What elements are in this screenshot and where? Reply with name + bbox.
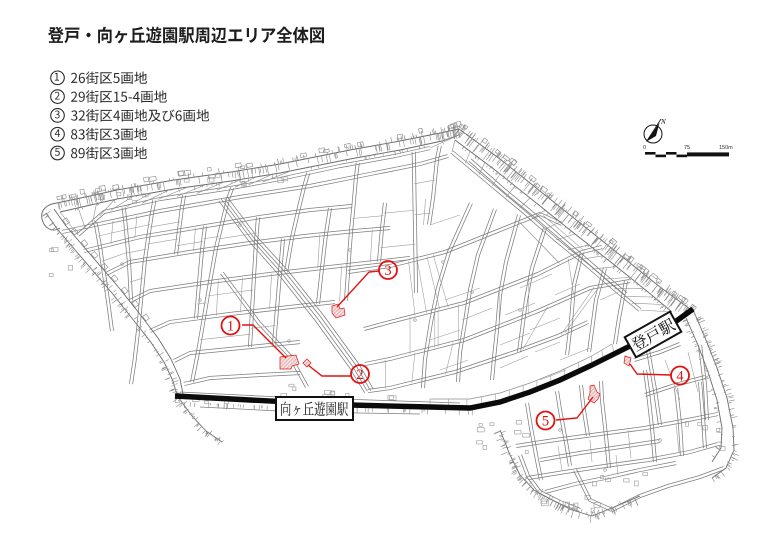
svg-text:150m: 150m bbox=[719, 145, 733, 151]
svg-text:5: 5 bbox=[542, 414, 549, 430]
svg-text:0: 0 bbox=[643, 145, 646, 151]
svg-text:75: 75 bbox=[684, 145, 690, 151]
svg-text:1: 1 bbox=[227, 319, 234, 335]
svg-text:N: N bbox=[660, 118, 666, 126]
svg-text:2: 2 bbox=[356, 367, 363, 383]
svg-text:3: 3 bbox=[384, 263, 391, 279]
svg-text:4: 4 bbox=[676, 369, 684, 385]
